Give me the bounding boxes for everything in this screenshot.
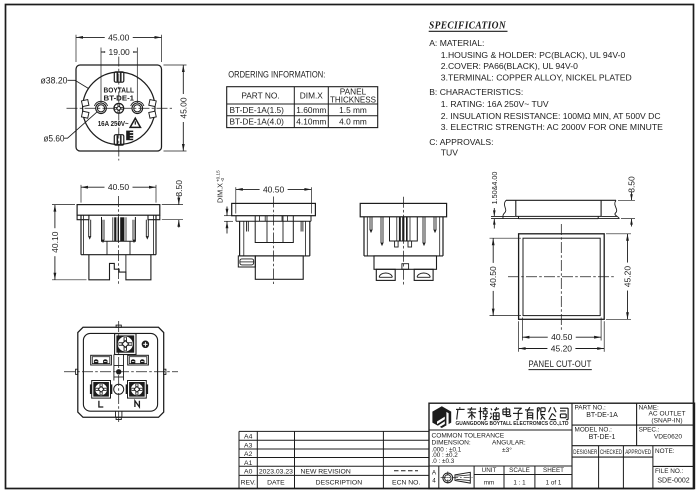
svg-text:COMMON TOLERANCE: COMMON TOLERANCE — [432, 432, 505, 439]
svg-text:DIM.X: DIM.X — [300, 90, 324, 100]
svg-text:DESIGNER: DESIGNER — [573, 449, 597, 456]
svg-text:ø5.60: ø5.60 — [44, 134, 65, 144]
svg-text:C: APPROVALS:: C: APPROVALS: — [429, 137, 493, 147]
svg-text:8.50: 8.50 — [626, 176, 636, 193]
svg-text:A4: A4 — [244, 434, 253, 441]
svg-text:1.50&4.00: 1.50&4.00 — [490, 172, 499, 205]
svg-text:TUV: TUV — [441, 148, 458, 158]
svg-text:40.50: 40.50 — [108, 182, 130, 192]
svg-text:1 : 1: 1 : 1 — [513, 479, 526, 486]
svg-text:DATE: DATE — [267, 480, 285, 487]
svg-text:-0: -0 — [220, 177, 225, 182]
svg-text:PANEL CUT-OUT: PANEL CUT-OUT — [529, 359, 592, 369]
svg-text:UNIT: UNIT — [482, 467, 497, 474]
svg-text:A2: A2 — [244, 451, 253, 458]
svg-text:.0 : ±0.3: .0 : ±0.3 — [432, 458, 455, 465]
svg-text:SHEET: SHEET — [543, 467, 564, 474]
svg-text:±3°: ±3° — [502, 446, 512, 454]
svg-text:4.0 mm: 4.0 mm — [339, 117, 367, 127]
svg-text:1.60mm: 1.60mm — [296, 105, 326, 115]
svg-text:VDE0620: VDE0620 — [654, 434, 683, 441]
svg-text:GUANGDONG BOYTALL ELECTRONICS: GUANGDONG BOYTALL ELECTRONICS CO.,LTD — [456, 421, 569, 427]
svg-text:3. ELECTRIC STRENGTH: AC 2: 3. ELECTRIC STRENGTH: AC 2000V FOR ONE M… — [441, 122, 663, 132]
svg-text:REV.: REV. — [241, 480, 256, 487]
svg-text:8.50: 8.50 — [174, 180, 184, 197]
svg-text:1.5 mm: 1.5 mm — [339, 105, 367, 115]
svg-text:THICKNESS: THICKNESS — [330, 95, 376, 105]
svg-text:1. RATING: 16A 250V~ TUV: 1. RATING: 16A 250V~ TUV — [441, 99, 549, 109]
svg-text:SCALE: SCALE — [509, 467, 530, 474]
svg-text:2.COVER: PA66(BLACK), UL 94: 2.COVER: PA66(BLACK), UL 94V-0 — [441, 61, 578, 71]
svg-text:BT-DE-1A(1.5): BT-DE-1A(1.5) — [230, 105, 285, 115]
svg-text:3.TERMINAL: COPPER ALLOY, N: 3.TERMINAL: COPPER ALLOY, NICKEL PLATED — [441, 73, 632, 83]
svg-text:PART NO.:: PART NO.: — [575, 405, 606, 412]
svg-text:SDE-0002: SDE-0002 — [657, 477, 689, 484]
svg-text:40.50: 40.50 — [488, 266, 498, 288]
svg-text:SPEC.:: SPEC.: — [639, 427, 660, 434]
svg-text:45.00: 45.00 — [108, 32, 130, 42]
svg-text:A: MATERIAL:: A: MATERIAL: — [429, 38, 484, 48]
svg-text:1 of 1: 1 of 1 — [546, 479, 562, 486]
svg-text:DESCRIPTION: DESCRIPTION — [316, 480, 363, 487]
svg-text:40.10: 40.10 — [50, 231, 60, 253]
svg-text:ECN NO.: ECN NO. — [392, 480, 420, 487]
svg-text:40.50: 40.50 — [263, 184, 285, 194]
svg-text:PART NO.: PART NO. — [241, 90, 279, 100]
svg-text:MODEL NO.:: MODEL NO.: — [575, 427, 613, 434]
svg-text:45.20: 45.20 — [551, 344, 573, 354]
svg-text:40.50: 40.50 — [551, 332, 573, 342]
svg-text:BT-DE-1: BT-DE-1 — [589, 434, 616, 441]
svg-text:(SNAP-IN): (SNAP-IN) — [651, 417, 682, 424]
svg-text:NEW REVISION: NEW REVISION — [301, 469, 351, 476]
svg-text:DIM.X: DIM.X — [216, 183, 225, 203]
svg-text:45.00: 45.00 — [178, 97, 188, 119]
svg-text:19.00: 19.00 — [109, 47, 131, 57]
svg-text:16A 250V~: 16A 250V~ — [98, 119, 129, 128]
svg-text:FILE NO.:: FILE NO.: — [655, 468, 684, 475]
svg-text:BT-DE-1: BT-DE-1 — [104, 94, 135, 103]
svg-text:2. INSULATION RESISTANCE: 1: 2. INSULATION RESISTANCE: 100MΩ MIN, AT … — [441, 111, 661, 121]
svg-text:1.HOUSING & HOLDER: PC(BLAC: 1.HOUSING & HOLDER: PC(BLACK), UL 94V-0 — [441, 50, 626, 60]
svg-text:A3: A3 — [244, 443, 253, 450]
svg-text:ø38.20: ø38.20 — [41, 75, 68, 85]
svg-text:BT-DE-1A: BT-DE-1A — [586, 412, 618, 419]
svg-text:APPROVED: APPROVED — [625, 449, 651, 456]
svg-text:CHECKED: CHECKED — [600, 449, 622, 456]
svg-text:ANGULAR:: ANGULAR: — [492, 440, 526, 447]
svg-text:2023.03.23: 2023.03.23 — [259, 469, 293, 476]
svg-text:4.10mm: 4.10mm — [296, 117, 326, 127]
svg-text:B: CHARACTERISTICS:: B: CHARACTERISTICS: — [429, 87, 523, 97]
svg-text:45.20: 45.20 — [623, 266, 633, 288]
svg-text:BT-DE-1A(4.0): BT-DE-1A(4.0) — [230, 117, 285, 127]
svg-text:ORDERING INFORMATION:: ORDERING INFORMATION: — [228, 70, 325, 80]
svg-text:A1: A1 — [244, 460, 253, 467]
svg-text:SPECIFICATION: SPECIFICATION — [429, 20, 507, 32]
svg-text:mm: mm — [484, 479, 495, 486]
svg-text:NOTE:: NOTE: — [655, 448, 675, 455]
svg-text:4: 4 — [432, 478, 436, 485]
svg-text:A: A — [432, 470, 437, 477]
svg-text:A0: A0 — [244, 469, 253, 476]
